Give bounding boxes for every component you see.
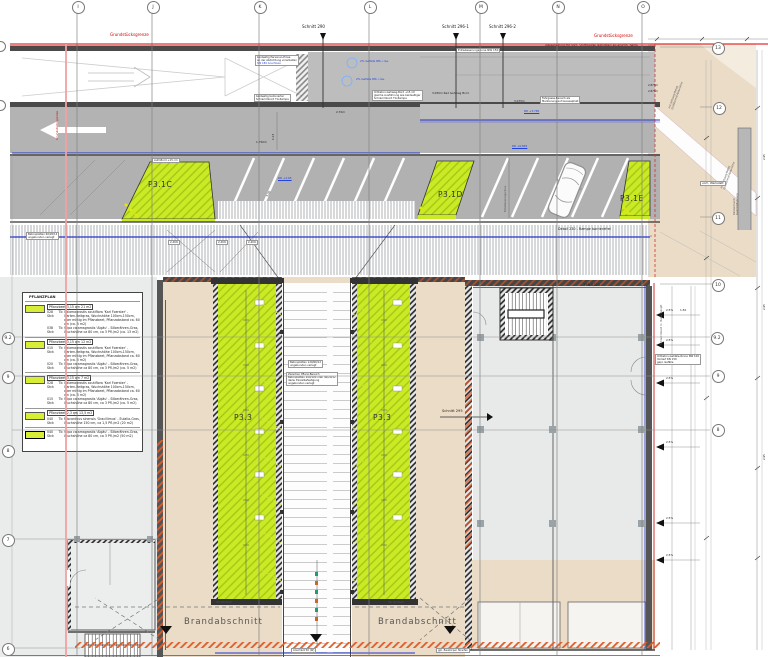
water-note: Wasserleitung mit vorh. Stützbauten Natu… (545, 44, 638, 47)
dim-2875-a: 2,875m (648, 84, 658, 87)
note-gefaelle-2: 2% Gefälle Rfb. i.Ge. (356, 78, 385, 81)
legend-entry: Pflanzbeet 3,15 qm 7 m2 028 StckTbCalama… (25, 372, 140, 405)
slope-arrow-icons (656, 312, 664, 564)
grid-col-bubble-l: L (364, 1, 377, 14)
note-aufz: Aufz.Bord +15 cm (152, 158, 180, 163)
section-label-296-1: Schnitt 296-1 (442, 25, 469, 30)
boundary-label-right: Grundstücksgrenze (594, 34, 633, 39)
legend-swatch (25, 341, 45, 349)
grid-row-bubble-right-8: 8 (712, 424, 725, 437)
grid-col-bubble-i: I (72, 1, 85, 14)
note-fahrgasse: Fahrgasse-Bereich alsMarkierung auf Guss… (540, 96, 580, 104)
legend-title: PFLANZPLAN (29, 295, 140, 299)
legend-entry-header: Pflanzbeet 3,15 qm 7 m2 (47, 375, 91, 381)
pedestrian-band (10, 225, 650, 283)
grid-row-bubble-right-92: 9.2 (711, 332, 724, 345)
grid-col-bubble-o: O (637, 1, 650, 14)
legend-entry: Pflanzbeet 2,3 qm 13,5 m2 040 StckTbMisc… (25, 408, 140, 425)
legend-swatch (25, 305, 45, 313)
note-schramm: beidseitig betonierterSchrammbord TG-Ram… (254, 94, 291, 102)
grid-col-bubble-j: J (147, 1, 160, 14)
dim-3075: 3,075m (514, 100, 525, 103)
dim-295-c: 2,95 (763, 454, 766, 460)
note-person: beidseitig Personen-Einsean der Abdichtu… (255, 55, 299, 66)
dim-240-a: 2,40m (168, 240, 180, 245)
section-label-290: Schnitt 290 (302, 25, 325, 30)
note-zwischen: Zwischen Pflanz-BereichBetonplatten 200/… (286, 372, 338, 386)
dim-295-b: 2,95 (763, 304, 766, 310)
workshop-label: vorh. Werkstatt (700, 181, 726, 186)
note-bord: Ortbeton-Gehweg-Bord +15 cmgleiche Ausfü… (372, 90, 423, 101)
legend-entry-header: Pflanzbeet 3,15 qm 21 m2 (47, 304, 93, 310)
legend-entry-header: Pflanzbeet 3,15 qm 12 m2 (47, 339, 93, 345)
grid-row-bubble-left-9: 9 (2, 371, 15, 384)
grid-row-bubble-left-6: 6 (2, 643, 15, 656)
level-ffb: FFB 4,110 (584, 284, 600, 288)
slope-6: 2,5% (666, 554, 673, 557)
strip-label-p33-right: P3.3 (373, 414, 391, 423)
legend-entry-header: Pflanzbeet 2,3 qm 13,5 m2 (47, 410, 94, 416)
strip-label-p33-left: P3.3 (234, 414, 252, 423)
slope-1: 2,5% (666, 309, 673, 312)
dim-123: 1,23 (272, 134, 275, 140)
dim-295-a: 2,95 (763, 154, 766, 160)
canopy-label-left: UK Vordach (216, 601, 232, 604)
grid-row-bubble-right-10: 10 (712, 279, 725, 292)
section-label-295: Schnitt 295 (442, 409, 463, 413)
grid-row-bubble-right-12: 12 (713, 102, 726, 115)
level-rd3: RD +2,65 (278, 177, 292, 180)
grid-col-bubble-n: N (552, 1, 565, 14)
slope-4: 2,5% (666, 441, 673, 444)
grid-col-bubble-k: K (254, 1, 267, 14)
slope-5: 2,5% (666, 517, 673, 520)
fire-compartment-label-left: Brandabschnitt (184, 617, 263, 627)
grid-row-bubble-right-9: 9 (712, 370, 725, 383)
dim-3050: 3,050m Rad Gehweg Bord (432, 92, 469, 95)
note-gefaelle-1: 2% Gefälle Rfb. i.Ge. (360, 60, 389, 63)
grid-row-bubble-left-92: 9.2 (2, 332, 15, 345)
parking-band (10, 155, 660, 236)
note-anschluss: Anschluß 50 (W) (291, 648, 316, 653)
grid-row-bubble-left-7: 7 (2, 534, 15, 547)
planting-strip-p33-left (218, 284, 276, 599)
note-beton60: Betonplatten 60/20/12ungebunden verlegt (26, 232, 59, 240)
note-detail230: Detail 230 - Rampe barrierefrei (558, 227, 611, 231)
dim-240-c: 2,40m (246, 240, 258, 245)
bed-label-p31c: P3.1C (148, 181, 172, 190)
slope-2: 2,5% (666, 339, 673, 342)
room (568, 602, 646, 648)
right-building (440, 280, 655, 650)
level-rd1: RD +3,765 (524, 110, 539, 113)
dim-270: 2,70m (336, 111, 345, 114)
slope-3: 2,5% (666, 377, 673, 380)
staircase (500, 288, 553, 340)
note-rinne100: Ortbeton-Gehälle-Rinne NW 100Vorlauf DN … (655, 354, 701, 365)
boundary-label-left: Grundstücksgrenze (110, 33, 149, 38)
dim-240-b: 2,40m (216, 240, 228, 245)
bed-label-p31e: P3.1E (620, 195, 644, 204)
dim-1750: 1,750m (256, 141, 267, 144)
fire-wall-hatch (75, 642, 660, 648)
planting-legend: PFLANZPLAN Pflanzbeet 3,15 qm 21 m2 028 … (22, 292, 143, 452)
dim-150: 1,50 (680, 309, 686, 312)
note-rinde: RindenmulchGehölzpflanzung (733, 193, 739, 215)
canopy-label-right: UK Vordach (388, 601, 404, 604)
note-rinne150: Entwässerungsrinne NW 150 (456, 48, 500, 53)
legend-entry: Pflanzbeet 3,15 qm 21 m2 028 StckTbCalam… (25, 301, 140, 334)
note-beton120: Betonplatten 120/60/12ungebunden verlegt (288, 360, 323, 368)
legend-swatch (25, 376, 45, 384)
northeast-walkway-zone (648, 44, 756, 277)
legend-entry: Pflanzbeet 3,15 qm 12 m2 010 StckTbCalam… (25, 337, 140, 370)
note-baukoerper: gpl. Baukörper Streifen (436, 648, 470, 653)
legend-entry: 040 StckTbStipa calamagrostis 'Algäu' - … (25, 427, 140, 439)
note-schrammbord-rot: Schrammbord m. Natursteinpfl. (660, 304, 663, 345)
grid-row-bubble-left-8: 8 (2, 445, 15, 458)
planting-strip-p33-right (357, 284, 410, 599)
note-entw-rot: Entwässerungsrinne (504, 186, 507, 212)
grid-row-bubble-right-13: 13 (712, 42, 725, 55)
dim-2875-b: 2,875m (648, 90, 658, 93)
boundary-label-rotated: Grundstücksgrenze (56, 111, 60, 140)
grid-col-bubble-m: M (475, 1, 488, 14)
section-label-296-2: Schnitt 296-2 (489, 25, 516, 30)
fire-compartment-label-right: Brandabschnitt (378, 617, 457, 627)
ramp-arrow-right-icon (88, 67, 150, 87)
site-plan-drawing: Grundstücksgrenze Grundstücksgrenze Wass… (0, 0, 768, 657)
level-rd2: RD +0,845 (512, 145, 527, 148)
central-path (280, 283, 354, 657)
room (478, 602, 560, 648)
legend-swatch (25, 412, 45, 420)
grid-row-bubble-right-11: 11 (712, 212, 725, 225)
legend-swatch-outlined (25, 431, 45, 439)
bed-label-p31d: P3.1D (438, 191, 463, 200)
